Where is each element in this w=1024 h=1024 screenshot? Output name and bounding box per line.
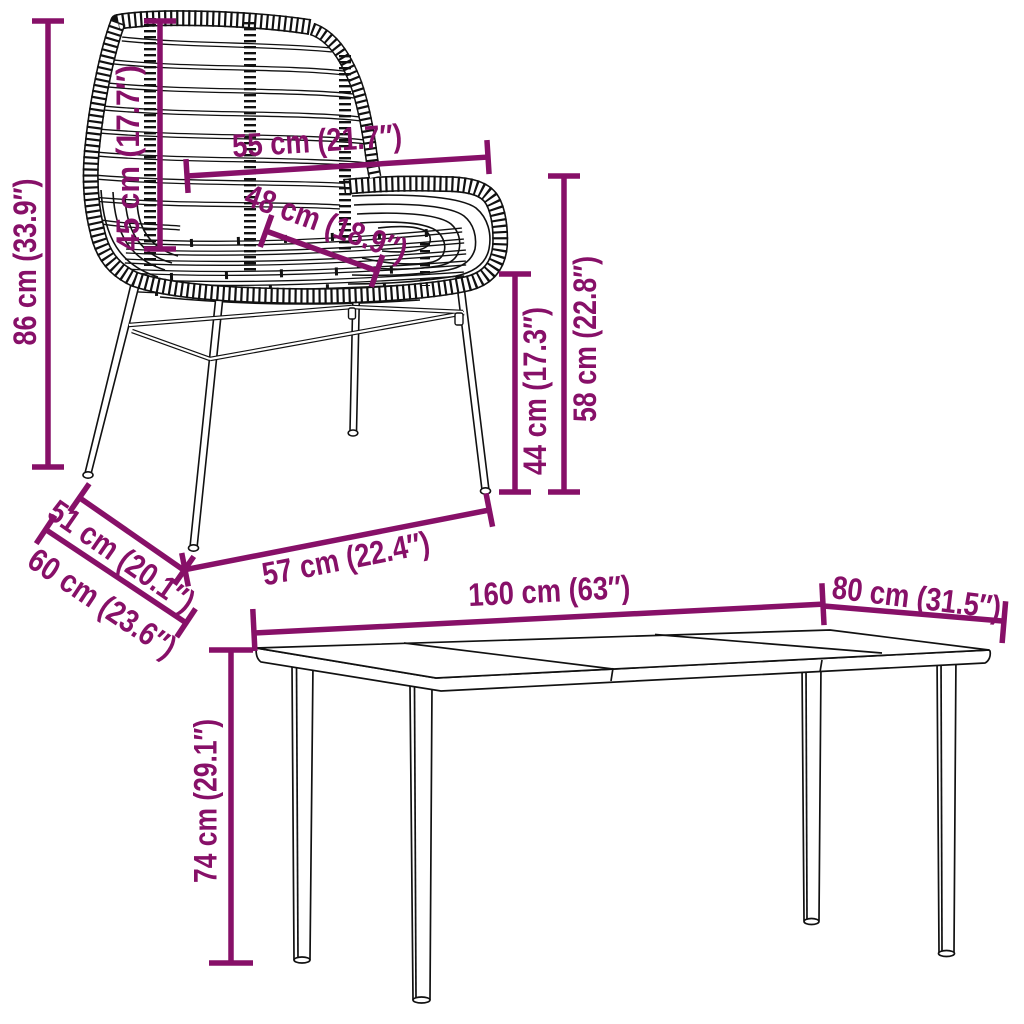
svg-text:86 cm (33.9″): 86 cm (33.9″) bbox=[7, 179, 43, 346]
svg-text:58 cm (22.8″): 58 cm (22.8″) bbox=[567, 256, 603, 422]
svg-text:45 cm (17.7″): 45 cm (17.7″) bbox=[110, 65, 146, 251]
svg-text:74 cm (29.1″): 74 cm (29.1″) bbox=[188, 719, 224, 883]
svg-text:44 cm (17.3″): 44 cm (17.3″) bbox=[517, 307, 553, 475]
